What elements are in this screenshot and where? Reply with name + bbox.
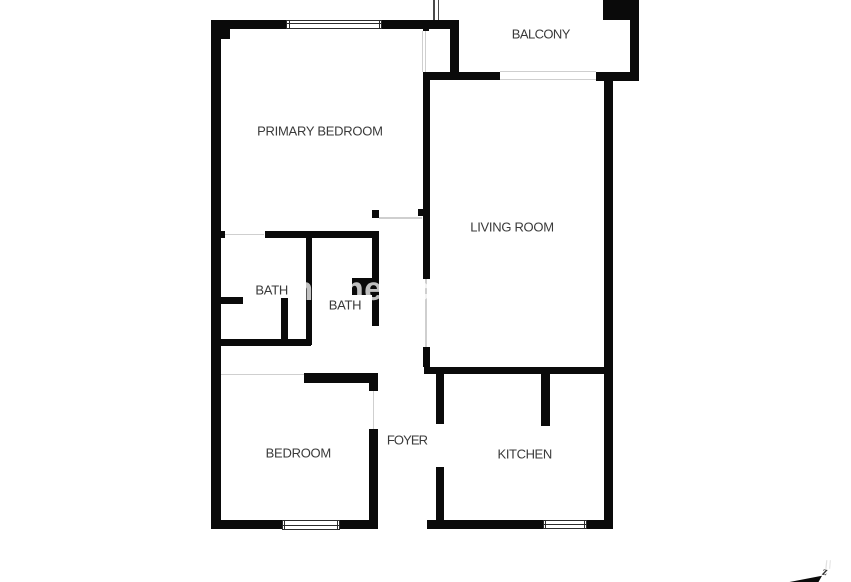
svg-text:z: z [821,564,829,579]
